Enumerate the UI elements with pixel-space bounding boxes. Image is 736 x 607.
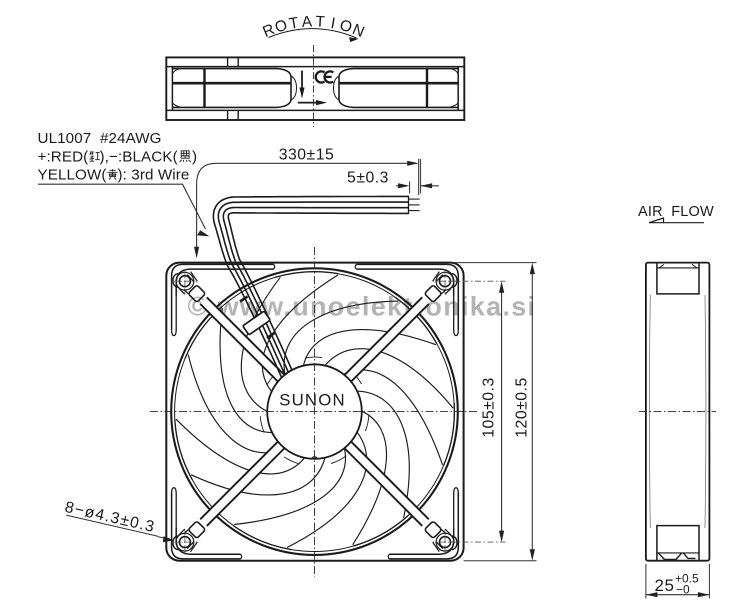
- svg-text:© www.unoelektronika.si: © www.unoelektronika.si: [188, 292, 537, 322]
- svg-text:UL1007 #24AWG: UL1007 #24AWG: [38, 130, 162, 147]
- svg-text:): 3rd Wire: ): 3rd Wire: [118, 167, 190, 184]
- svg-text:−0: −0: [676, 583, 690, 597]
- svg-text:5±0.3: 5±0.3: [347, 169, 389, 186]
- svg-text:120±0.5: 120±0.5: [514, 377, 531, 438]
- svg-text:AIR FLOW: AIR FLOW: [638, 204, 714, 220]
- svg-text:SUNON: SUNON: [279, 391, 346, 410]
- svg-text:+:RED(: +:RED(: [38, 148, 89, 165]
- svg-text:25: 25: [655, 576, 675, 595]
- svg-text:105±0.3: 105±0.3: [481, 377, 498, 438]
- svg-text:): ): [192, 148, 197, 165]
- svg-text:),−:BLACK(: ),−:BLACK(: [100, 148, 178, 165]
- svg-text:YELLOW(: YELLOW(: [38, 167, 107, 184]
- svg-text:330±15: 330±15: [279, 147, 335, 164]
